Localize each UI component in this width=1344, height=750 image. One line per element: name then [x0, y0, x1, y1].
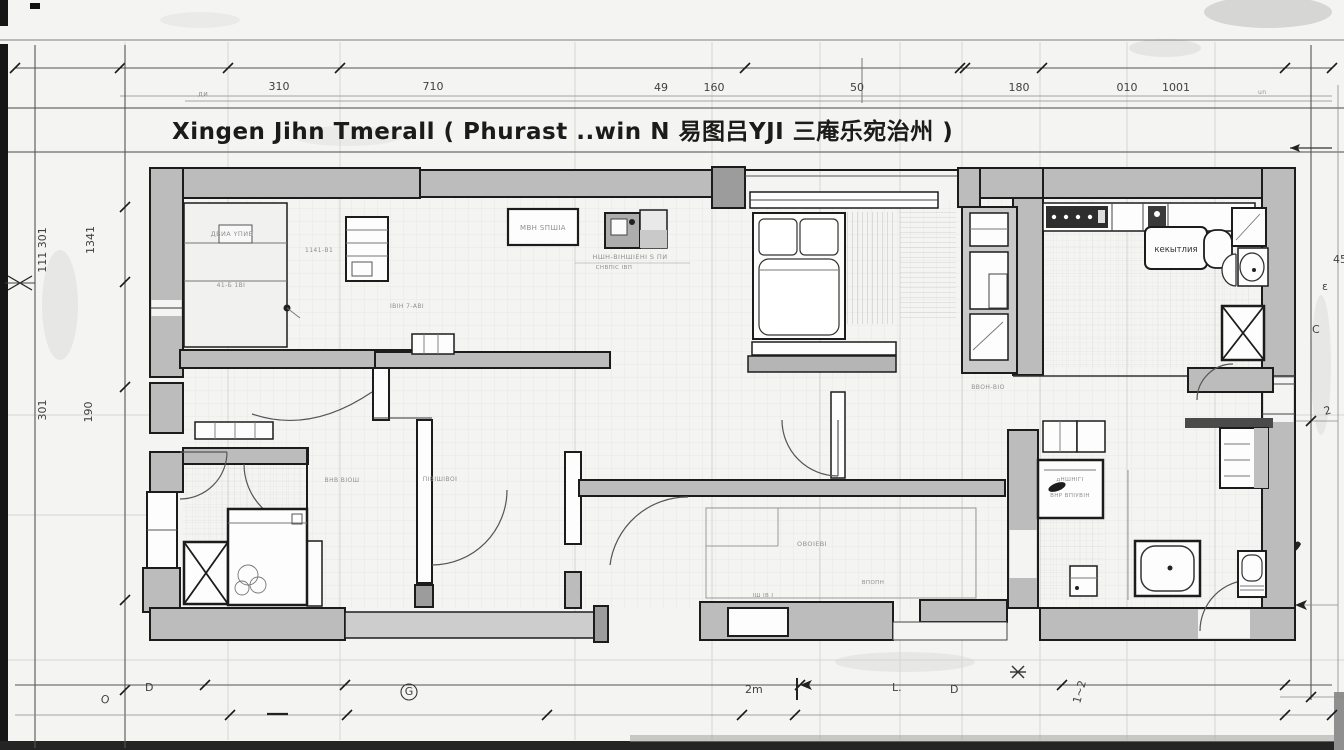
wall-hall-vert	[565, 452, 581, 544]
dim-left-1: 111 301	[36, 227, 49, 273]
bathtub-icon	[1135, 541, 1200, 596]
wall-bathR-left	[1008, 430, 1038, 608]
shelf-bar-b	[375, 352, 610, 368]
wall-left-mid	[150, 383, 183, 433]
window-center	[750, 192, 938, 208]
wall-bottom-right	[1040, 608, 1295, 640]
dim-top-3: 49	[654, 81, 668, 94]
dim-bottom-5: L.	[892, 681, 902, 694]
wall-hall-vert-b	[565, 572, 581, 608]
fridge-icon	[1232, 208, 1266, 246]
hatch-mark	[1010, 666, 1026, 678]
dim-bottom-4: 2m	[745, 683, 763, 696]
washbasin-cabinet-icon	[1038, 460, 1103, 518]
island-label: кекытлия	[1154, 245, 1197, 255]
dim-top-2: 710	[423, 80, 444, 93]
dim-left-3: 301	[36, 400, 49, 421]
dim-top-5: 50	[850, 81, 864, 94]
wall-strip-hall-b	[417, 420, 432, 583]
dim-top-1: 310	[269, 80, 290, 93]
drawing-sheet: Xingen Jihn Tmerall ( Phurast ..win N 易图…	[0, 0, 1344, 750]
note: СНВПІС ІВП	[596, 265, 633, 271]
door-gap-bath	[1198, 610, 1250, 639]
wall-bathL-jamb	[307, 541, 322, 606]
dim-right-1: 45	[1333, 253, 1344, 266]
shaft-x-icon	[1222, 306, 1264, 360]
dimension-chain-top: 310 710 49 160 50 180 010 1001	[10, 58, 1337, 103]
note: дНШНІГІ	[1056, 477, 1083, 483]
dim-bottom-2: D	[145, 681, 153, 694]
wall-top-mid	[420, 170, 712, 197]
shelf-bracket	[1185, 418, 1273, 428]
dim-right-3: C	[1312, 323, 1320, 336]
blind-hatch	[900, 210, 956, 320]
bench-icon	[412, 334, 454, 354]
cab-box-2	[1077, 421, 1105, 452]
wall-bottom-left	[150, 608, 345, 640]
drawing-title: Xingen Jihn Tmerall ( Phurast ..win N 易图…	[172, 118, 953, 145]
floor-plan-drawing: Xingen Jihn Tmerall ( Phurast ..win N 易图…	[0, 0, 1344, 750]
note: 1141-В1	[305, 247, 333, 254]
dim-top-4: 160	[704, 81, 725, 94]
note: МВН SПШІА	[520, 224, 566, 232]
dim-left-4: 190	[82, 402, 95, 423]
dim-bottom-7: 1~2	[1070, 679, 1089, 705]
wall-left-lower	[150, 452, 183, 492]
note: ІВІН 7-АВІ	[390, 303, 424, 310]
wall-column	[712, 167, 745, 208]
bed1-icon	[184, 203, 300, 347]
bathL-bench-icon	[195, 422, 273, 439]
dim-ticks-bottom	[200, 680, 1337, 720]
wall-top-left	[150, 168, 420, 198]
note: un	[1258, 89, 1266, 96]
bed2-bench	[752, 342, 896, 355]
note: ВВОН-ВІО	[971, 384, 1004, 391]
note: ВПОПН	[862, 580, 885, 586]
wardrobe2-icon	[962, 207, 1017, 373]
wall-bathL-shelf	[183, 448, 308, 464]
shower-x-icon	[184, 542, 228, 604]
dimension-chain-left: 111 301 1341 301 190	[5, 45, 130, 748]
dim-top-8: 1001	[1162, 81, 1190, 94]
wall-kitchen-step	[1188, 368, 1273, 392]
dim-right-2: ε	[1322, 280, 1328, 293]
wall-jamb-dark	[594, 606, 608, 642]
note: ДВИА ҮПИВ	[211, 230, 254, 238]
bed2-lowboard	[748, 356, 896, 372]
note: ВНР ВПІУВІН	[1050, 493, 1090, 499]
note: ПІВІШІВОІ	[423, 476, 458, 483]
wall-top-kitchen	[1043, 168, 1263, 198]
dim-bottom-6: D	[950, 683, 958, 696]
note: 41-Б 1ВІ	[217, 282, 246, 289]
dim-left-2: 1341	[84, 226, 97, 254]
wall-top-right-a	[980, 168, 1043, 198]
sideboard-box	[728, 608, 788, 636]
note: ОВОІЕВІ	[797, 540, 827, 548]
wall-strip-foot	[415, 585, 433, 607]
wall-living-top	[579, 480, 1005, 496]
shade-hatch	[847, 212, 897, 324]
note: НШН-ВІНШІЕНІ S ПИ	[593, 253, 668, 261]
wall-step-ledge	[893, 622, 1007, 640]
wall-bottom-light	[345, 612, 595, 638]
dim-top-6: 180	[1009, 81, 1030, 94]
note: ІШ ІВ І	[753, 593, 774, 599]
wall-left-upper	[150, 168, 183, 377]
note: ди	[198, 90, 208, 98]
small-appliance-icon	[1070, 566, 1097, 596]
plant-cabinet-icon	[228, 509, 307, 605]
wall-pier	[958, 168, 980, 207]
wall-step	[920, 600, 1007, 622]
dimension-chain-bottom: O D G 2m L. D 1~2	[15, 666, 1337, 720]
door-gap-bathR	[1010, 530, 1037, 578]
note: ВНВ ВІОШ	[325, 477, 360, 484]
wall-left-bottom	[143, 568, 180, 612]
dim-bottom-3: G	[405, 685, 414, 698]
wardrobe1-icon	[346, 217, 388, 281]
dim-top-7: 010	[1117, 81, 1138, 94]
dim-bottom-1: O	[99, 692, 111, 707]
